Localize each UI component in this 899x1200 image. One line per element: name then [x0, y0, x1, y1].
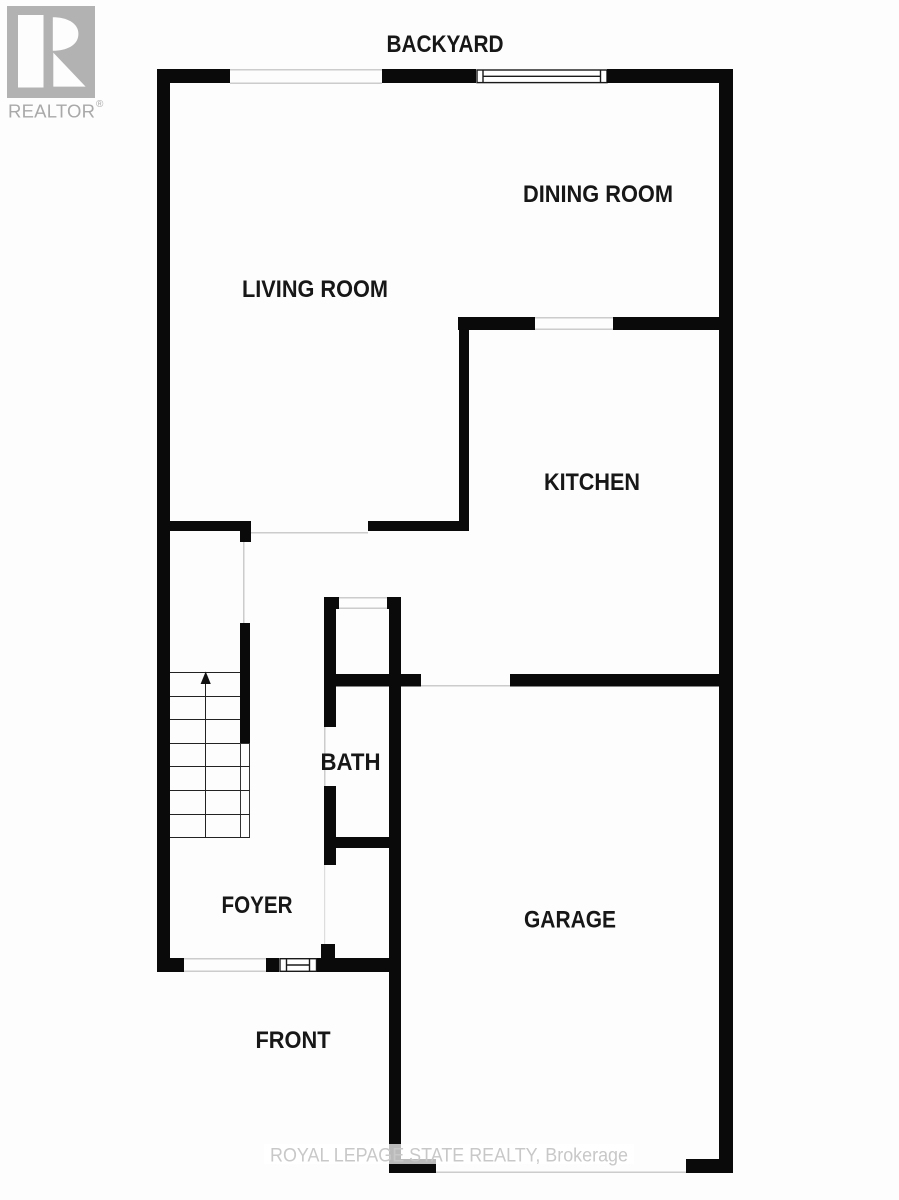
svg-text:DINING ROOM: DINING ROOM	[523, 181, 673, 208]
svg-text:ROYAL LEPAGE STATE REALTY, Bro: ROYAL LEPAGE STATE REALTY, Brokerage	[270, 1146, 628, 1167]
svg-text:KITCHEN: KITCHEN	[544, 469, 640, 496]
svg-text:BATH: BATH	[321, 749, 381, 776]
svg-text:®: ®	[96, 99, 104, 110]
svg-text:FOYER: FOYER	[222, 892, 293, 919]
svg-text:REALTOR: REALTOR	[8, 101, 95, 122]
svg-text:GARAGE: GARAGE	[524, 906, 616, 933]
svg-text:LIVING ROOM: LIVING ROOM	[242, 276, 388, 303]
svg-text:FRONT: FRONT	[256, 1027, 331, 1054]
svg-text:BACKYARD: BACKYARD	[387, 31, 504, 58]
